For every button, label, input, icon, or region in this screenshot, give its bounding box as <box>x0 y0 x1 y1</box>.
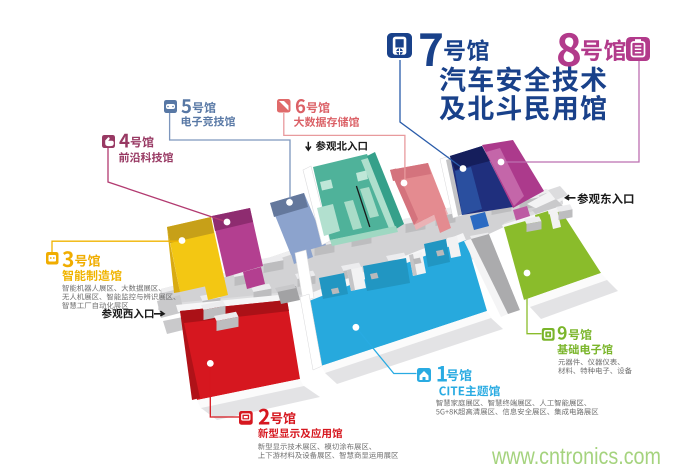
svg-text:www.cntronics.com: www.cntronics.com <box>491 443 661 469</box>
